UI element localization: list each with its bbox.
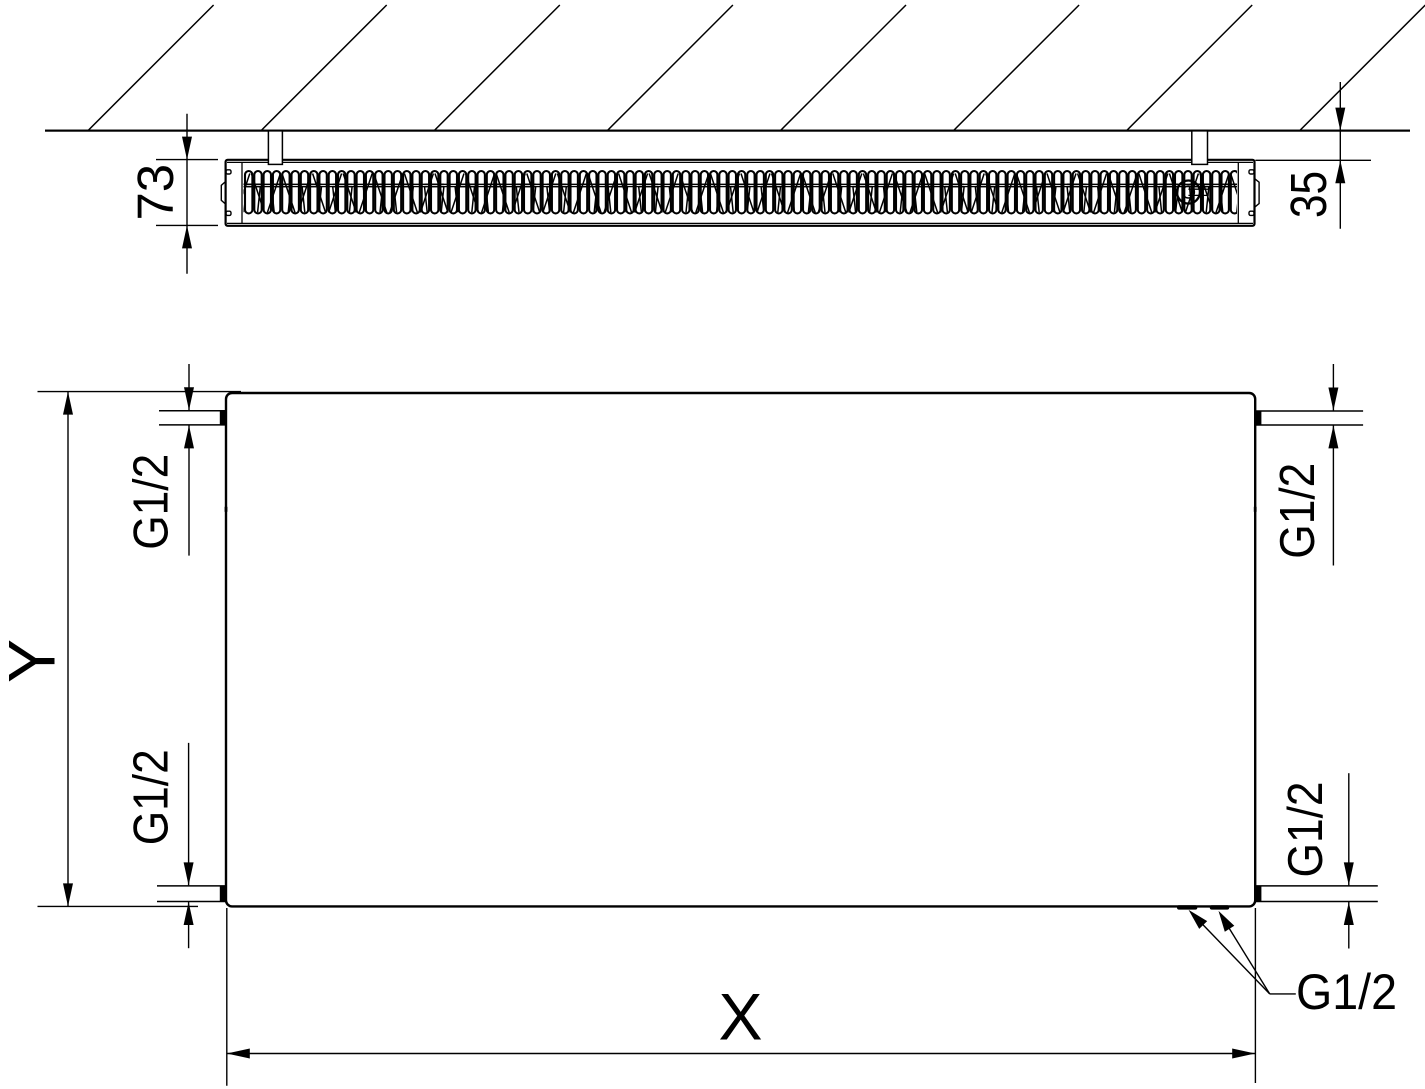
svg-text:G1/2: G1/2	[1279, 782, 1333, 878]
svg-text:X: X	[718, 980, 762, 1054]
svg-text:G1/2: G1/2	[125, 749, 179, 845]
svg-text:35: 35	[1280, 171, 1337, 218]
svg-text:73: 73	[127, 164, 184, 221]
svg-text:G1/2: G1/2	[125, 454, 179, 550]
svg-text:G1/2: G1/2	[1296, 964, 1397, 1020]
svg-text:Y: Y	[0, 639, 69, 683]
svg-text:G1/2: G1/2	[1271, 463, 1325, 559]
